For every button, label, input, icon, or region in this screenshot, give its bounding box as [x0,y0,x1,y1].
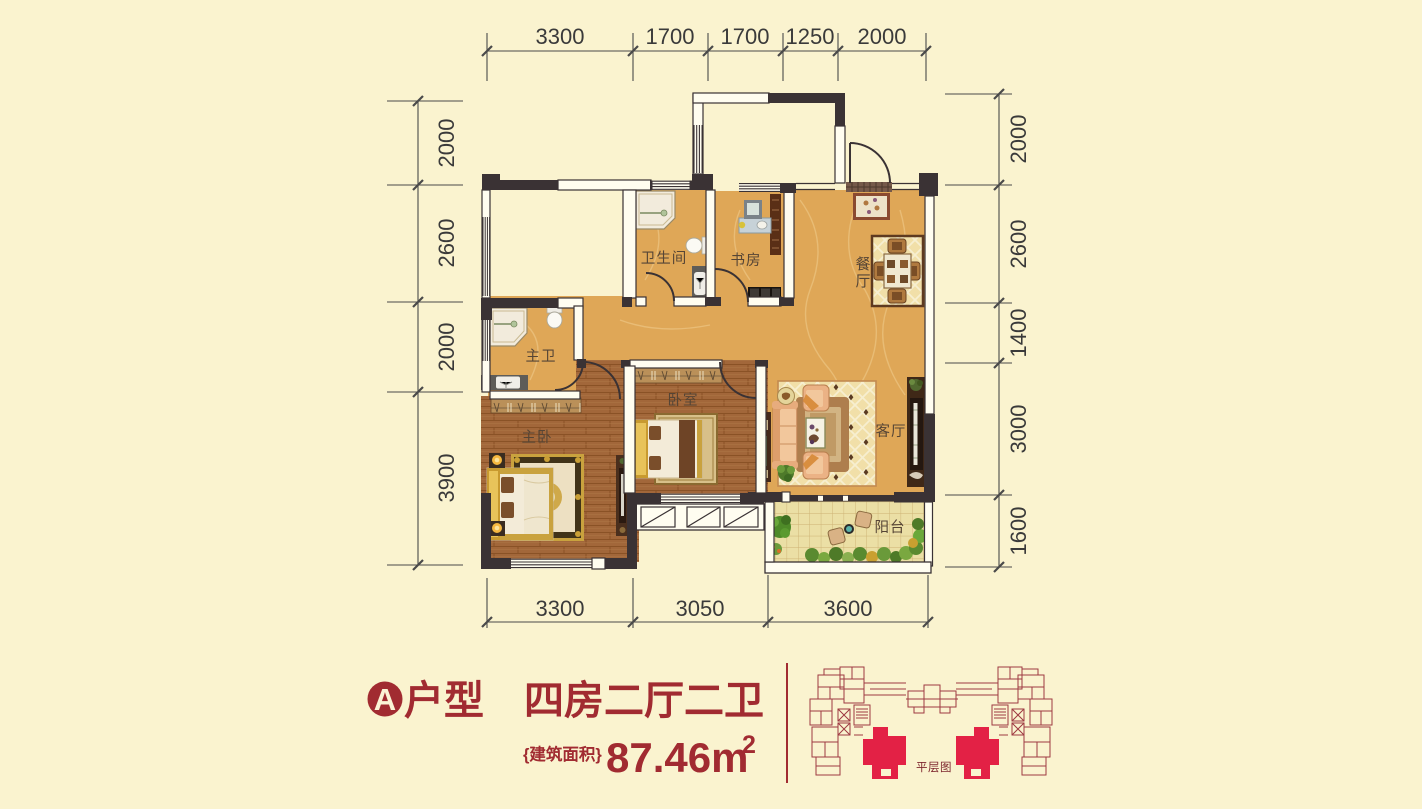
svg-text:阳台: 阳台 [875,519,906,536]
svg-text:3900: 3900 [434,454,459,503]
svg-text:主卧: 主卧 [522,429,553,446]
svg-text:平层图: 平层图 [916,761,952,774]
svg-text:3000: 3000 [1006,405,1031,454]
svg-text:3300: 3300 [536,596,585,621]
svg-text:87.46m: 87.46m [606,734,748,781]
svg-text:书房: 书房 [731,252,762,269]
svg-text:3300: 3300 [536,24,585,49]
svg-text:2000: 2000 [434,323,459,372]
svg-text:2: 2 [742,731,756,759]
svg-text:2000: 2000 [858,24,907,49]
svg-text:1700: 1700 [721,24,770,49]
svg-text:卧室: 卧室 [668,392,699,409]
svg-text:3600: 3600 [824,596,873,621]
svg-text:1250: 1250 [786,24,835,49]
svg-text:2000: 2000 [434,119,459,168]
svg-text:客厅: 客厅 [876,423,907,440]
svg-text:2600: 2600 [434,219,459,268]
svg-text:3050: 3050 [676,596,725,621]
svg-text:2600: 2600 [1006,220,1031,269]
svg-text:厅: 厅 [855,273,870,290]
svg-text:卫生间: 卫生间 [641,250,688,267]
svg-text:主卫: 主卫 [526,348,557,365]
svg-text:四房二厅二卫: 四房二厅二卫 [524,679,764,723]
svg-text:{建筑面积}: {建筑面积} [523,744,602,764]
svg-text:1700: 1700 [646,24,695,49]
svg-text:1400: 1400 [1006,309,1031,358]
svg-text:A: A [374,682,396,717]
svg-text:餐: 餐 [855,256,870,273]
svg-text:2000: 2000 [1006,115,1031,164]
svg-text:户型: 户型 [404,679,484,723]
svg-text:1600: 1600 [1006,507,1031,556]
